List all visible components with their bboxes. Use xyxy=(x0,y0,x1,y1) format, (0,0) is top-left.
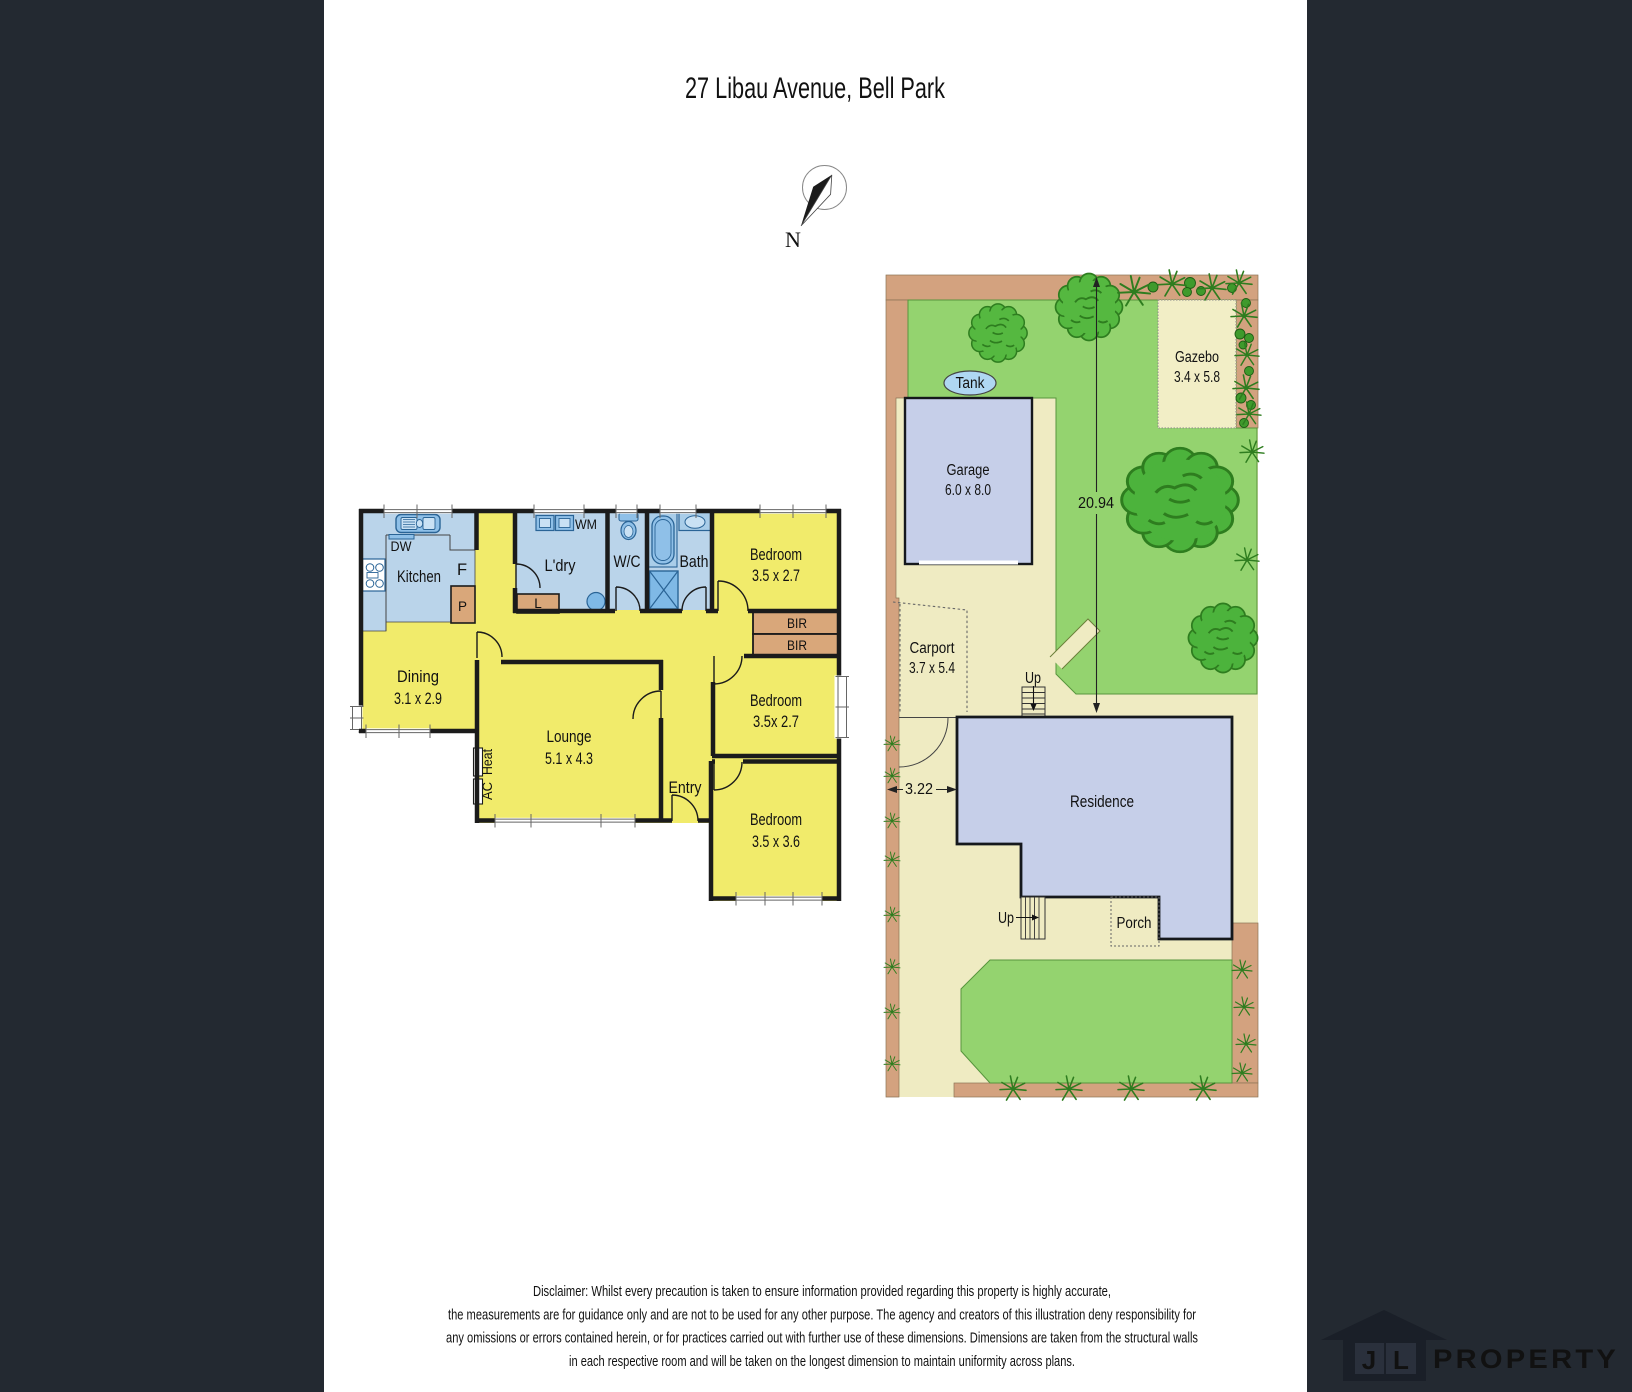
svg-text:Garage: Garage xyxy=(947,462,990,479)
svg-text:Bedroom: Bedroom xyxy=(750,811,802,829)
svg-text:AC: AC xyxy=(480,782,495,800)
svg-text:3.5 x 2.7: 3.5 x 2.7 xyxy=(752,567,800,585)
svg-text:Residence: Residence xyxy=(1070,792,1134,811)
svg-text:Heat: Heat xyxy=(480,749,495,775)
svg-text:27 Libau Avenue, Bell Park: 27 Libau Avenue, Bell Park xyxy=(685,72,946,105)
svg-text:BIR: BIR xyxy=(787,638,807,653)
svg-text:N: N xyxy=(785,227,801,252)
svg-text:F: F xyxy=(457,561,467,579)
svg-text:3.7 x 5.4: 3.7 x 5.4 xyxy=(909,660,955,677)
svg-text:any omissions or errors contai: any omissions or errors contained herein… xyxy=(446,1330,1198,1347)
svg-text:DW: DW xyxy=(391,539,412,554)
svg-text:L: L xyxy=(1393,1345,1409,1375)
svg-text:PROPERTY: PROPERTY xyxy=(1433,1344,1619,1374)
svg-text:Entry: Entry xyxy=(669,779,703,797)
svg-text:the measurements are for guida: the measurements are for guidance only a… xyxy=(448,1306,1196,1323)
svg-text:in each respective room and wi: in each respective room and will be take… xyxy=(569,1353,1075,1370)
svg-text:J: J xyxy=(1362,1345,1376,1375)
svg-text:3.5 x 3.6: 3.5 x 3.6 xyxy=(752,833,800,851)
svg-text:3.5x 2.7: 3.5x 2.7 xyxy=(753,713,799,731)
svg-text:Bedroom: Bedroom xyxy=(750,546,802,564)
svg-text:Lounge: Lounge xyxy=(547,728,592,746)
svg-text:W/C: W/C xyxy=(614,553,641,571)
svg-text:3.1 x 2.9: 3.1 x 2.9 xyxy=(394,690,442,708)
svg-text:Bedroom: Bedroom xyxy=(750,692,802,710)
svg-text:L'dry: L'dry xyxy=(545,557,577,575)
svg-text:20.94: 20.94 xyxy=(1078,495,1114,512)
svg-text:Dining: Dining xyxy=(397,668,439,686)
svg-text:Gazebo: Gazebo xyxy=(1175,349,1219,366)
svg-text:P: P xyxy=(458,599,467,614)
svg-text:WM: WM xyxy=(575,517,597,532)
svg-text:Kitchen: Kitchen xyxy=(397,568,441,586)
svg-text:Carport: Carport xyxy=(910,640,956,657)
svg-text:Disclaimer: Whilst every preca: Disclaimer: Whilst every precaution is t… xyxy=(533,1283,1111,1300)
svg-text:5.1 x 4.3: 5.1 x 4.3 xyxy=(545,750,593,768)
svg-text:3.22: 3.22 xyxy=(905,781,933,798)
svg-text:Up: Up xyxy=(998,910,1014,927)
svg-text:Porch: Porch xyxy=(1117,915,1152,932)
svg-text:Up: Up xyxy=(1025,670,1041,687)
svg-text:6.0 x 8.0: 6.0 x 8.0 xyxy=(945,482,991,499)
svg-text:Bath: Bath xyxy=(680,553,709,571)
svg-text:3.4 x 5.8: 3.4 x 5.8 xyxy=(1174,369,1220,386)
svg-text:BIR: BIR xyxy=(787,616,807,631)
svg-text:Tank: Tank xyxy=(956,375,985,392)
